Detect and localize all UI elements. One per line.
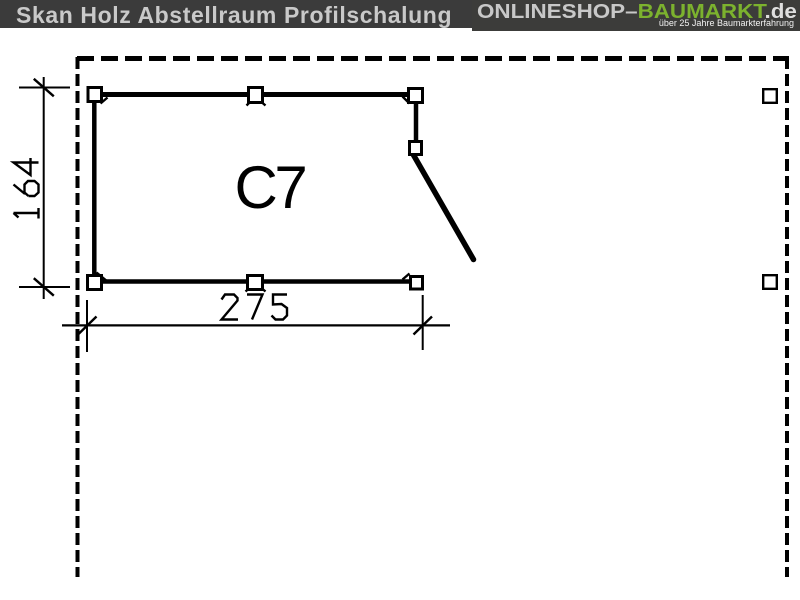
svg-text:C7: C7 bbox=[235, 154, 306, 221]
